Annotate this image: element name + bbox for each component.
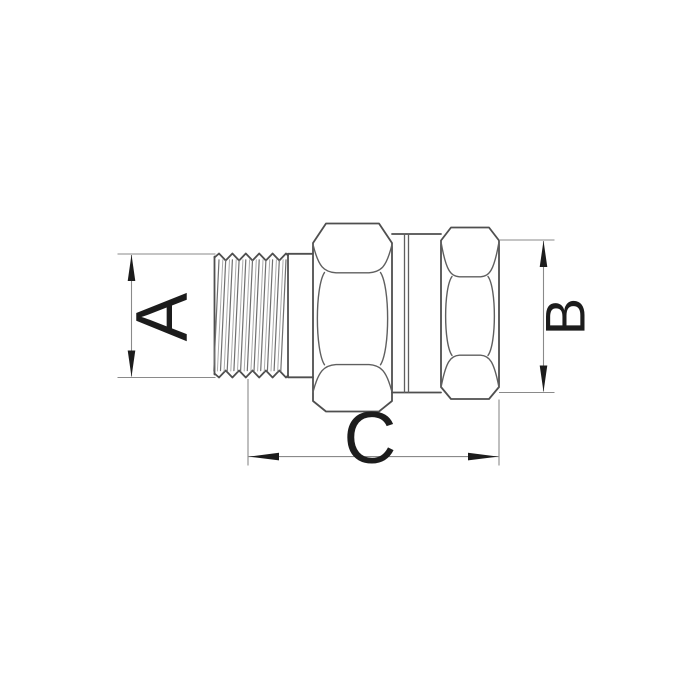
dimension-a-label: A [122, 292, 203, 341]
thread-neck [288, 254, 313, 377]
small-hex-outline [441, 228, 499, 400]
dim-c-arrow-left [249, 453, 279, 461]
fitting-technical-drawing: A B C [0, 0, 700, 700]
large-hex-lower-face-line [313, 365, 392, 392]
large-hex-left-face-curve [317, 273, 324, 365]
dim-c-arrow-right [468, 453, 498, 461]
small-hex-left-face-curve [446, 277, 452, 356]
large-hex-upper-face-line [313, 245, 392, 273]
thread-bottom-crest-zigzag [215, 371, 289, 378]
dimension-arrowheads [128, 241, 548, 461]
collar-cylinder [392, 234, 441, 393]
large-hex-outline [313, 224, 392, 412]
small-hex-lower-face-line [441, 355, 499, 387]
drawing-canvas: A B C [0, 0, 700, 700]
small-hex-body [441, 228, 499, 400]
dim-b-arrow-up [540, 241, 548, 267]
dimension-b-label: B [534, 298, 597, 335]
thread-top-crest-zigzag [215, 254, 289, 261]
small-hex-right-face-curve [488, 277, 494, 356]
small-hex-upper-face-line [441, 242, 499, 277]
dim-b-arrow-down [540, 366, 548, 392]
dimension-c-label: C [344, 398, 397, 479]
male-thread [214, 254, 288, 378]
dim-a-arrow-up [128, 255, 136, 282]
large-hex-nut [313, 224, 392, 412]
large-hex-right-face-curve [381, 273, 388, 365]
fitting-body [214, 224, 499, 412]
dimension-labels: A B C [122, 292, 597, 479]
dim-a-arrow-down [128, 351, 136, 378]
